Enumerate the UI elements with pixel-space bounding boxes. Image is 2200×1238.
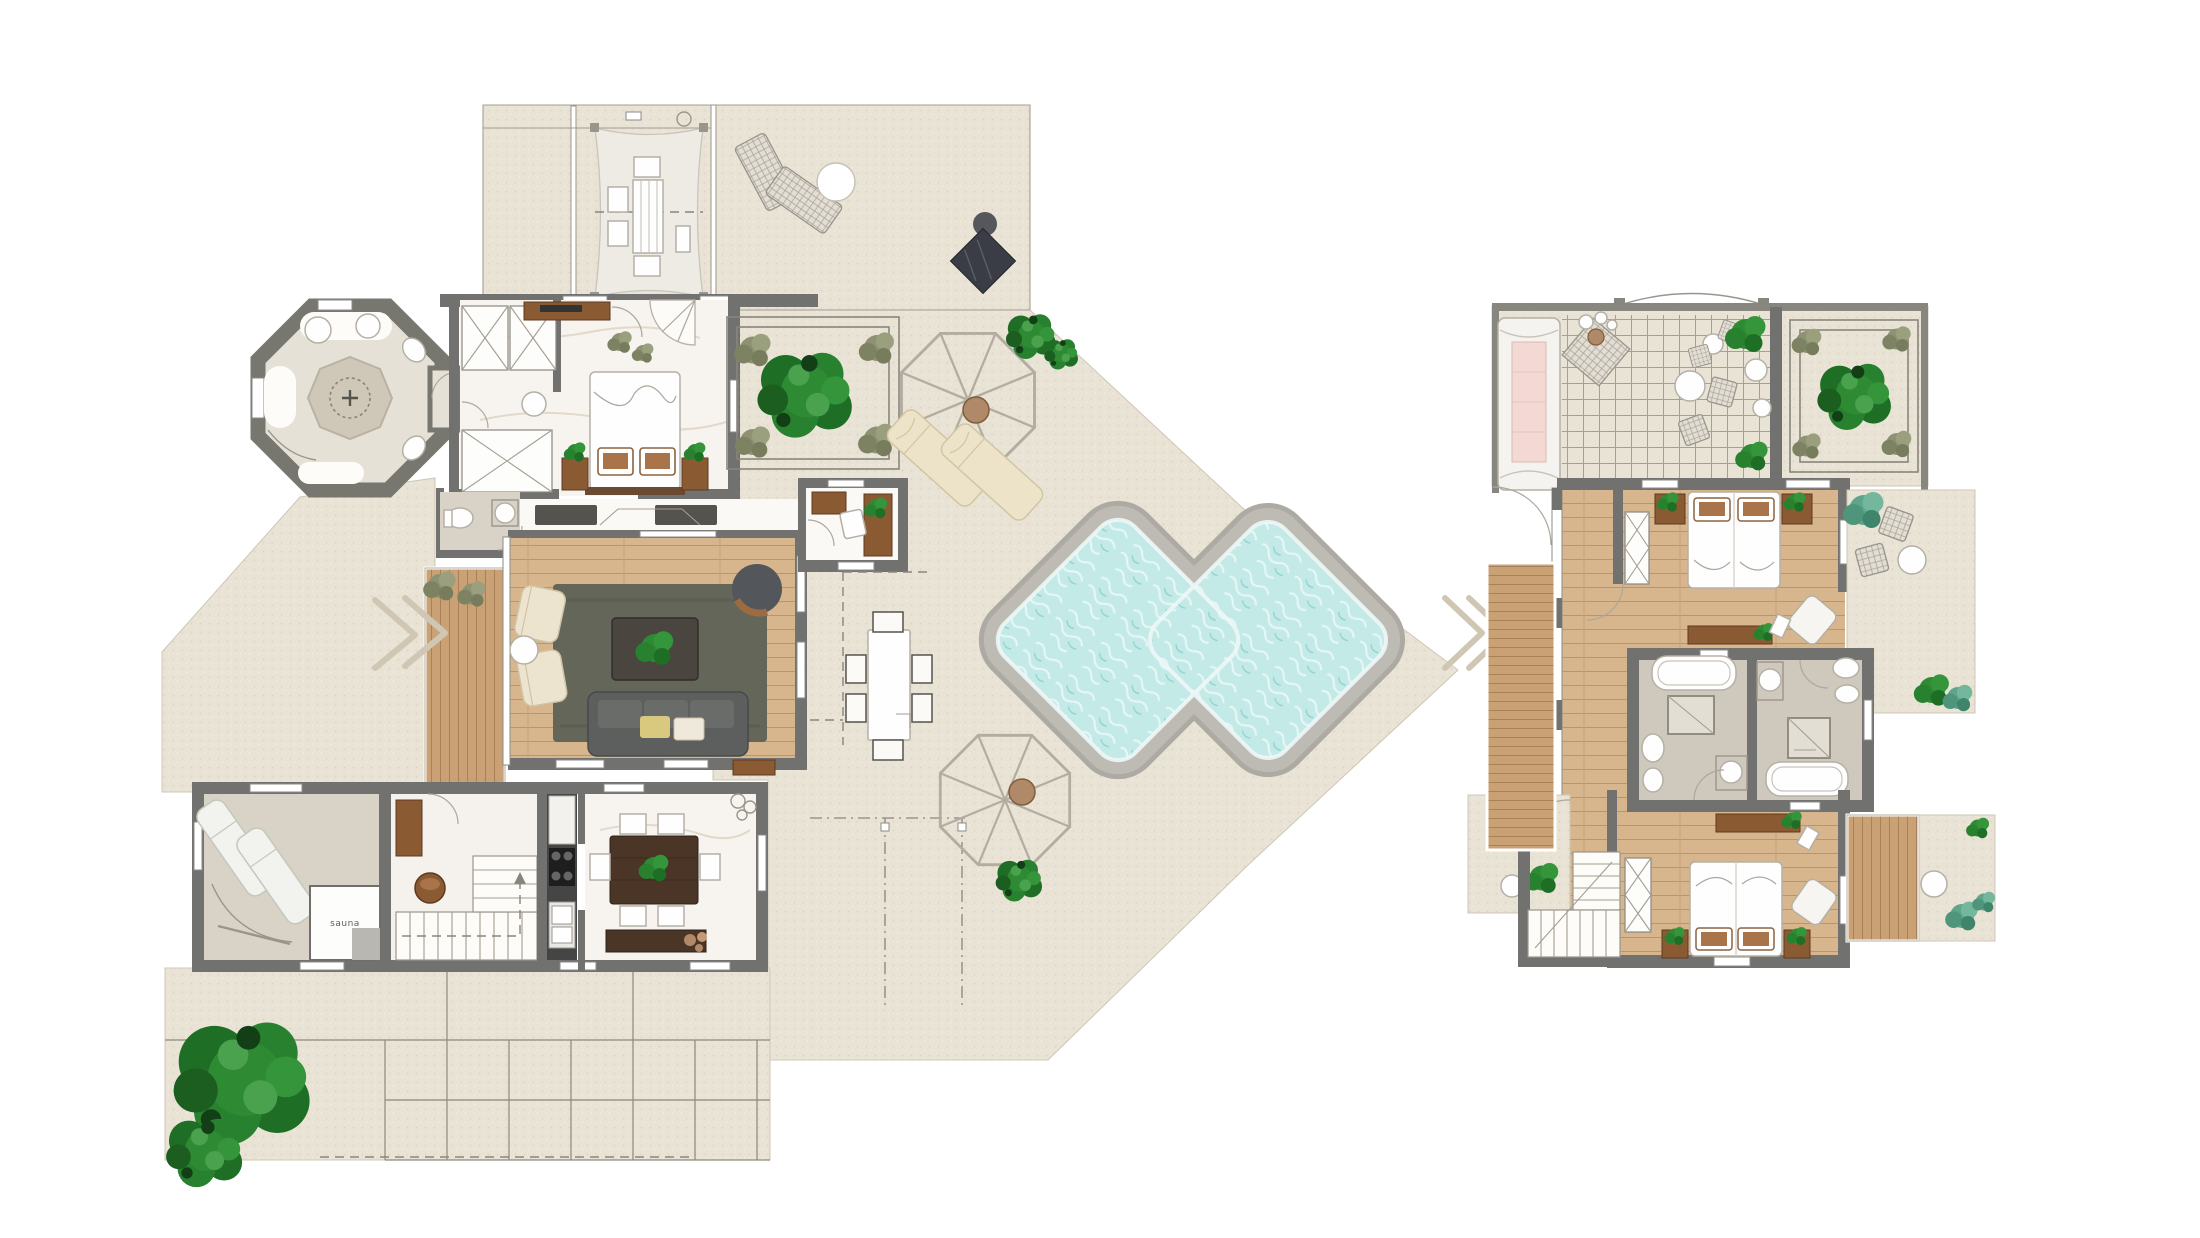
tv [540, 305, 582, 312]
sink [1759, 669, 1781, 691]
ground-floor-plan: sauna [162, 105, 1458, 1187]
sink [1720, 761, 1742, 783]
swivel-chair [732, 564, 782, 614]
round-table [1898, 546, 1926, 574]
terrace-chair [634, 157, 660, 177]
bathrooms [1627, 648, 1874, 812]
double-bed [1688, 492, 1780, 588]
far-east-terrace [1919, 815, 1995, 941]
terrace-chair [608, 221, 628, 246]
bidet [1835, 685, 1859, 703]
fridge [549, 796, 575, 844]
double-bed [585, 372, 685, 495]
side-table [963, 397, 989, 423]
wardrobe [1625, 858, 1651, 932]
kitchen [537, 782, 585, 972]
planted-deck [423, 568, 505, 792]
wardrobe [1625, 512, 1649, 584]
living-room [503, 530, 807, 775]
dining-room [585, 794, 756, 960]
lower-wing: sauna [192, 782, 768, 972]
nightstand [682, 458, 708, 490]
shade-sail-dining [590, 112, 708, 301]
sauna-room: sauna [193, 782, 391, 972]
hammam [252, 300, 460, 490]
garden-tree [166, 1119, 242, 1187]
terrace-chair [608, 187, 628, 212]
terrace-chair [634, 256, 660, 276]
sofa [588, 692, 748, 756]
nightstand [562, 458, 588, 490]
pouf [1675, 371, 1705, 401]
entry-hall [798, 478, 908, 572]
deck-bridge [1847, 815, 1919, 941]
round-table [817, 163, 855, 201]
toilet [1642, 734, 1664, 762]
villa-floorplan-drawing: sauna [0, 0, 2200, 1238]
canopy-daybed [1498, 318, 1560, 490]
sink [549, 902, 575, 948]
toilet [1833, 658, 1859, 678]
floorplan-canvas: sauna [0, 0, 2200, 1238]
upper-floor-plan [1445, 294, 1995, 969]
stool [522, 392, 546, 416]
basin [356, 314, 380, 338]
basin [305, 317, 331, 343]
twin-beds [1690, 862, 1782, 956]
west-deck [1487, 563, 1555, 850]
master-suite [449, 294, 740, 502]
sauna-label: sauna [330, 919, 360, 929]
side-table [510, 636, 538, 664]
stove [549, 848, 575, 886]
bench [733, 760, 775, 775]
stair-hall [391, 794, 537, 960]
bidet [1643, 768, 1663, 792]
